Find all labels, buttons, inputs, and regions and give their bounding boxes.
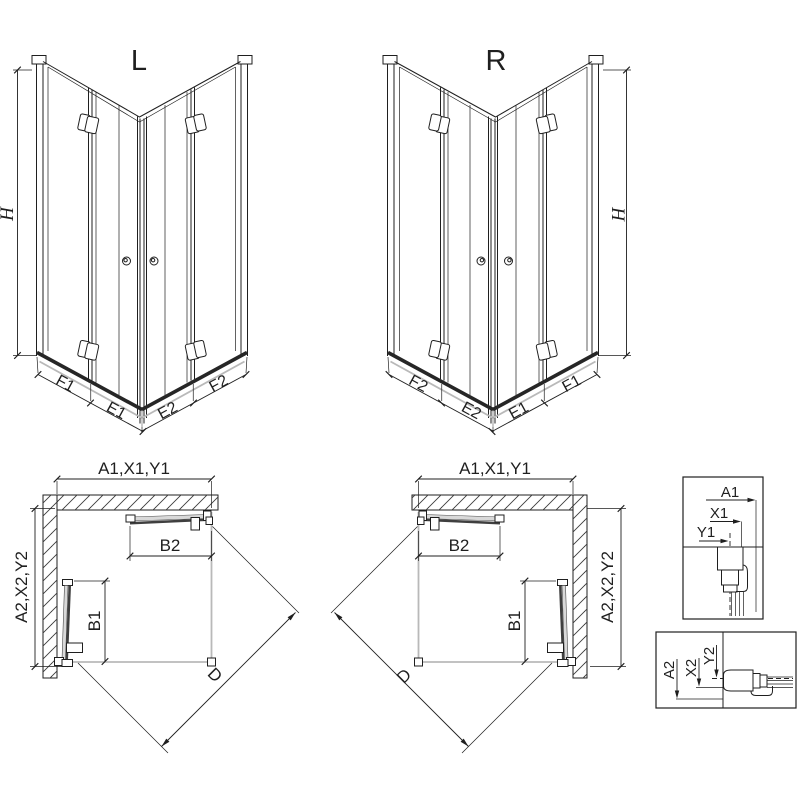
segment-label-f1-left: F1 [53,372,78,396]
variant-title-left: L [131,45,147,77]
top-door-label-right: B2 [449,536,470,555]
width-label-left: A1,X1,Y1 [98,459,170,478]
3d-view-right: R H F2 E2 E1 F1 [383,45,631,435]
side-profile-section-icon [724,670,794,696]
plan-view-right: A1,X1,Y1 A2,X2,Y2 B2 B1 D [331,459,626,753]
segment-label-e2-left: E2 [155,399,180,423]
depth-label-right: A2,X2,Y2 [598,551,617,623]
detail-side-profile: A2 X2 Y2 [656,632,796,708]
plan-view-left: A1,X1,Y1 A2,X2,Y2 B2 B1 D [12,459,299,753]
segment-label-e1-left: E1 [103,399,128,423]
variant-title-right: R [486,45,507,77]
segment-label-f2-right: F2 [406,372,431,396]
technical-drawing-page: L H F1 E1 E2 F2 R H F2 E2 E1 F1 [0,0,800,800]
detail-label-a1: A1 [721,484,739,501]
depth-label-left: A2,X2,Y2 [12,551,31,623]
detail-label-x2: X2 [683,659,700,677]
height-label-left: H [0,206,18,222]
segment-label-f2-left: F2 [207,372,232,396]
wall-profile-section-icon [718,547,748,616]
detail-label-a2: A2 [661,661,678,679]
side-door-label-left: B1 [85,611,104,632]
width-label-right: A1,X1,Y1 [459,459,531,478]
detail-label-y2: Y2 [701,647,718,665]
dim-diagonal-right [331,527,552,754]
height-label-right: H [607,206,628,222]
plan-geometry-left [55,510,216,667]
detail-label-y1: Y1 [697,524,715,541]
side-door-label-right: B1 [505,611,524,632]
3d-view-left: L H F1 E1 E2 F2 [0,45,252,435]
segment-label-e1-right: E1 [506,399,531,423]
dim-diagonal-left [78,527,299,754]
shower-enclosure-drawing: L H F1 E1 E2 F2 R H F2 E2 E1 F1 [0,0,800,800]
plan-geometry-right [415,510,576,667]
detail-label-x1: X1 [710,505,728,522]
diagonal-label-right: D [393,665,415,687]
top-door-label-left: B2 [160,536,181,555]
diagonal-label-left: D [204,664,226,686]
detail-front-profile: A1 X1 Y1 [683,477,763,619]
